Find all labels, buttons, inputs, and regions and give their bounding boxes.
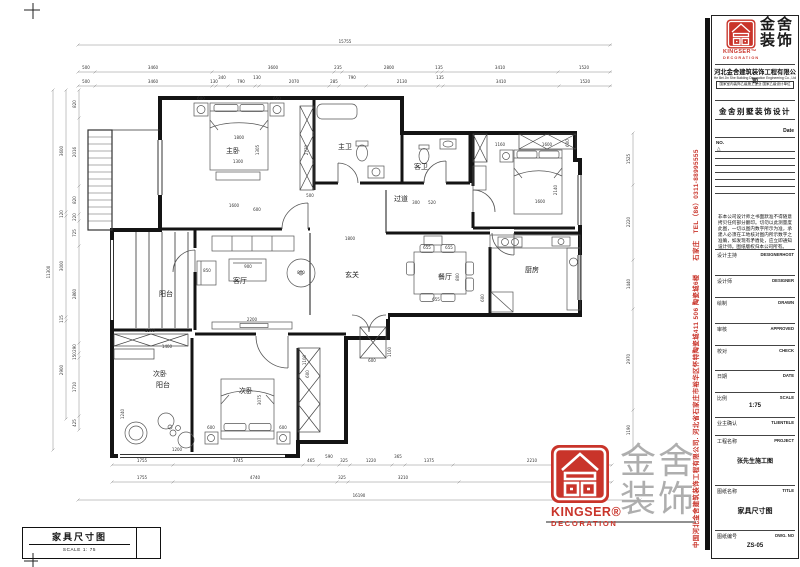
svg-text:1190: 1190 [626, 424, 631, 435]
svg-text:11300: 11300 [46, 265, 51, 278]
project-value: 张先生施工图 [712, 456, 798, 465]
svg-text:2860: 2860 [72, 288, 77, 299]
rule [715, 64, 795, 65]
svg-text:1520: 1520 [579, 65, 590, 70]
svg-text:2140: 2140 [553, 184, 558, 195]
svg-text:600: 600 [207, 425, 215, 430]
kingser-logo-icon [726, 19, 756, 49]
room-label-balcony2-line1: 次卧 [153, 369, 167, 378]
field-drawn-cn: 绘制 [717, 300, 727, 307]
svg-text:790: 790 [237, 79, 245, 84]
svg-text:3460: 3460 [148, 79, 159, 84]
scale-value: 1:75 [712, 403, 798, 409]
svg-text:340: 340 [218, 75, 226, 80]
sheet-name-box: 家具尺寸图 SCALE 1: 75 [22, 527, 137, 559]
svg-text:16190: 16190 [353, 493, 366, 498]
svg-text:2130: 2130 [397, 79, 408, 84]
svg-text:135: 135 [435, 65, 443, 70]
svg-text:2200: 2200 [247, 317, 258, 322]
svg-text:120: 120 [59, 210, 64, 218]
svg-text:1600: 1600 [535, 199, 546, 204]
svg-text:1400: 1400 [162, 344, 173, 349]
room-label-dining: 餐厅 [438, 272, 452, 281]
title-block: KINGSER™ DECORATION 金舍 装饰 河北金舍建筑装饰工程有限公司… [711, 15, 799, 559]
room-label-master: 主卧 [226, 146, 240, 155]
svg-text:850: 850 [203, 268, 211, 273]
dimension-text: 15755 5003460 3600235 2800135 34101520 5… [46, 39, 631, 498]
room-label-gbath: 客卫 [414, 162, 428, 171]
svg-text:3410: 3410 [495, 65, 506, 70]
svg-text:2800: 2800 [384, 65, 395, 70]
svg-text:600: 600 [197, 96, 205, 101]
svg-text:4740: 4740 [250, 475, 261, 480]
svg-text:1160: 1160 [495, 142, 506, 147]
field-title-en: TITLE [782, 488, 794, 493]
logo-cn-characters: 金舍 装饰 [760, 17, 794, 49]
svg-text:600: 600 [565, 139, 570, 147]
svg-text:1600: 1600 [229, 203, 240, 208]
svg-text:130: 130 [253, 75, 261, 80]
field-dwgno-en: DWG. NO [775, 533, 794, 538]
svg-text:2970: 2970 [626, 353, 631, 364]
svg-text:500: 500 [306, 193, 314, 198]
svg-text:1200: 1200 [172, 447, 183, 452]
field-designerhost-en: DESIGNERHOST [760, 252, 794, 257]
room-label-mbath: 主卫 [338, 142, 352, 151]
field-approved-en: APPROVED [770, 326, 794, 331]
room-label-foyer: 玄关 [345, 270, 359, 279]
svg-text:465: 465 [307, 458, 315, 463]
svg-text:1520: 1520 [580, 79, 591, 84]
svg-text:3410: 3410 [496, 79, 507, 84]
svg-text:2770: 2770 [304, 144, 309, 155]
doors [173, 161, 514, 368]
sheet-scale: SCALE 1: 75 [23, 547, 136, 552]
svg-text:600: 600 [480, 294, 485, 302]
svg-text:1710: 1710 [72, 381, 77, 392]
titleblock-divider-bar [705, 18, 710, 550]
svg-text:790: 790 [348, 75, 356, 80]
svg-text:655: 655 [432, 297, 440, 302]
svg-text:600: 600 [368, 358, 376, 363]
field-title-cn: 图纸名称 [717, 488, 737, 495]
svg-text:1800: 1800 [345, 236, 356, 241]
svg-text:220: 220 [72, 213, 77, 221]
field-check-cn: 校对 [717, 348, 727, 355]
field-designerhost-cn: 设计主持 [717, 252, 737, 259]
svg-text:1305: 1305 [255, 144, 260, 155]
svg-text:115: 115 [59, 315, 64, 323]
svg-text:150: 150 [72, 352, 77, 360]
field-approved-cn: 审核 [717, 326, 727, 333]
svg-text:365: 365 [394, 454, 402, 459]
svg-text:1755: 1755 [137, 458, 148, 463]
project-heading: 金舍别墅装饰设计 [712, 106, 798, 117]
field-drawn-en: DRAWN [778, 300, 794, 305]
svg-text:3600: 3600 [268, 65, 279, 70]
svg-text:500: 500 [82, 79, 90, 84]
room-label-kitchen: 厨房 [525, 265, 539, 274]
field-date-en: DATE [783, 373, 794, 378]
company-name-en: He Bei Jin She Building Decoration Engin… [712, 76, 798, 80]
svg-text:600: 600 [253, 207, 261, 212]
svg-text:2220: 2220 [626, 216, 631, 227]
svg-text:1440: 1440 [626, 278, 631, 289]
svg-text:325: 325 [340, 458, 348, 463]
disclaimer-text: 非本公司设计师之书面默准不得随意拷贝任何部分翻印。切勿以此测量度此图，一切以图内… [718, 214, 792, 250]
svg-text:285: 285 [330, 79, 338, 84]
sheet-title-value: 家具尺寸图 [712, 506, 798, 516]
svg-text:800: 800 [297, 270, 305, 275]
svg-text:325: 325 [338, 475, 346, 480]
watermark-wordmark: KINGSER® DECORATION [551, 506, 621, 530]
field-project-cn: 工程名称 [717, 438, 737, 445]
svg-text:290: 290 [72, 344, 77, 352]
room-label-balcony2-line2: 阳台 [156, 380, 170, 389]
logo-en: KINGSER™ [723, 49, 757, 55]
sheet-name: 家具尺寸图 [23, 530, 136, 543]
svg-text:3600: 3600 [59, 145, 64, 156]
svg-text:2210: 2210 [527, 458, 538, 463]
sheet-name-box-cell [135, 527, 161, 559]
svg-text:1100: 1100 [302, 354, 307, 365]
field-designer-cn: 设计师 [717, 278, 732, 285]
field-date-cn: 日期 [717, 373, 727, 380]
drawing-sheet: 15755 5003460 3600235 2800135 34101520 5… [0, 0, 800, 567]
field-scale-cn: 比例 [717, 395, 727, 402]
svg-text:2016: 2016 [72, 146, 77, 157]
svg-text:800: 800 [455, 273, 460, 281]
logo-wordmark: KINGSER™ DECORATION [723, 50, 759, 61]
svg-text:820: 820 [72, 100, 77, 108]
svg-text:1600: 1600 [542, 142, 553, 147]
svg-text:820: 820 [72, 196, 77, 204]
svg-text:1800: 1800 [234, 135, 245, 140]
svg-text:135: 135 [436, 75, 444, 80]
svg-text:1500: 1500 [145, 328, 156, 333]
room-label-living: 客厅 [233, 276, 247, 285]
watermark-logo: KINGSER® DECORATION 金舍 装饰 [548, 444, 698, 528]
svg-text:1375: 1375 [424, 458, 435, 463]
svg-text:520: 520 [428, 200, 436, 205]
svg-text:3075: 3075 [257, 394, 262, 405]
field-project-en: PROJECT [774, 438, 794, 443]
svg-text:2900: 2900 [59, 364, 64, 375]
kingser-watermark-icon [550, 444, 610, 504]
svg-text:590: 590 [325, 454, 333, 459]
room-label-hall: 过道 [394, 194, 408, 203]
svg-text:235: 235 [334, 65, 342, 70]
svg-text:1525: 1525 [626, 153, 631, 164]
svg-text:3000: 3000 [59, 260, 64, 271]
field-designer-en: DESIGNER [772, 278, 794, 283]
dwg-number-value: ZS-05 [712, 543, 798, 549]
svg-text:600: 600 [279, 425, 287, 430]
svg-text:1100: 1100 [387, 346, 392, 357]
svg-text:900: 900 [244, 264, 252, 269]
svg-text:655: 655 [423, 245, 431, 250]
svg-text:2070: 2070 [289, 79, 300, 84]
field-client-cn: 业主确认 [717, 420, 737, 427]
svg-text:1300: 1300 [233, 159, 244, 164]
svg-text:500: 500 [82, 65, 90, 70]
svg-text:300: 300 [412, 200, 420, 205]
field-dwgno-cn: 图纸编号 [717, 533, 737, 540]
svg-text:130: 130 [210, 79, 218, 84]
svg-text:15755: 15755 [339, 39, 352, 44]
svg-text:1220: 1220 [366, 458, 377, 463]
field-check-en: CHECK [779, 348, 794, 353]
svg-text:655: 655 [445, 245, 453, 250]
logo-en-sub: DECORATION [723, 56, 759, 62]
svg-text:725: 725 [72, 229, 77, 237]
field-scale-en: SCALE [780, 395, 794, 400]
company-credential: 国家室内装饰乙级施工企业 国家乙级设计单位 [716, 81, 794, 89]
svg-text:3460: 3460 [148, 65, 159, 70]
svg-text:1240: 1240 [120, 408, 125, 419]
svg-text:425: 425 [72, 419, 77, 427]
svg-text:3745: 3745 [233, 458, 244, 463]
field-client-en: TLIENTELE [771, 420, 794, 425]
date-label: Date [783, 128, 794, 134]
watermark-cn-characters: 金舍 装饰 [620, 442, 696, 518]
svg-text:1755: 1755 [137, 475, 148, 480]
no-label: NO. [716, 140, 724, 145]
sheet-name-underline [29, 544, 130, 545]
svg-text:650: 650 [273, 96, 281, 101]
room-label-bed2: 次卧 [239, 386, 253, 395]
svg-text:600: 600 [305, 370, 310, 378]
svg-text:3210: 3210 [398, 475, 409, 480]
room-label-balcony: 阳台 [159, 289, 173, 298]
